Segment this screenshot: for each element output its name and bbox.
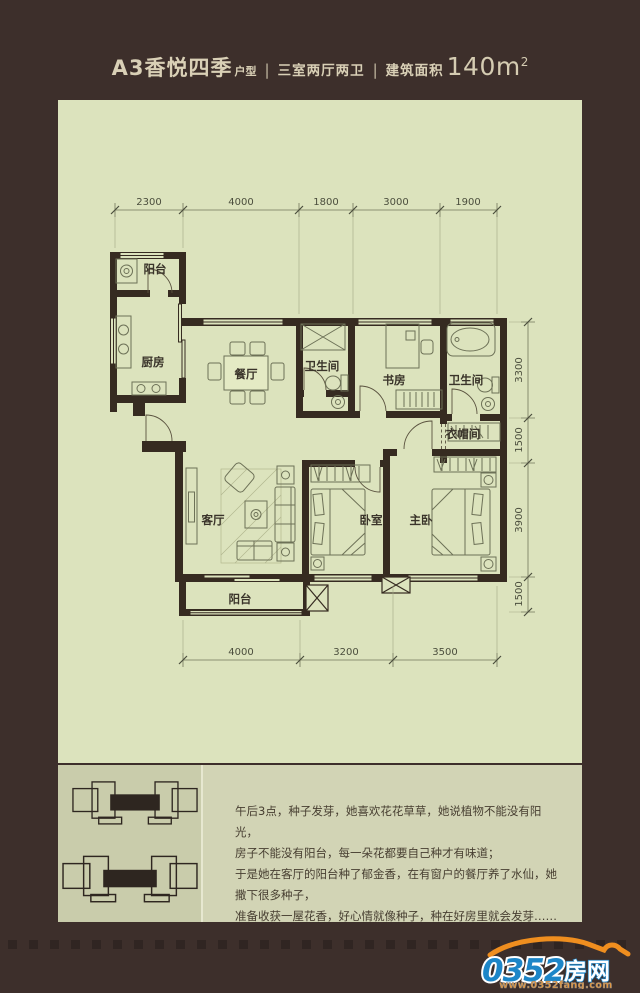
armchair xyxy=(223,461,255,493)
story-line-2: 房子不能没有阳台，每一朵花都要自己种才有味道； xyxy=(235,843,564,864)
bedroom-window xyxy=(314,575,372,581)
bath2-door xyxy=(452,389,477,414)
loveseat xyxy=(237,541,272,560)
tv-cabinet xyxy=(186,468,197,544)
plan-name: A3香悦四季 xyxy=(112,52,233,82)
floorplan-drawing: 2300 4000 1800 3000 1900 4000 3200 3500 … xyxy=(58,100,582,763)
logo-url: www.0352fang.com xyxy=(499,980,613,989)
kitchen-sliding-door xyxy=(179,304,186,378)
master-window xyxy=(408,575,478,581)
study-desk xyxy=(386,324,433,368)
shaft-box-balcony xyxy=(306,585,328,611)
dim-bottom-2: 3200 xyxy=(333,647,358,658)
label-kitchen: 厨房 xyxy=(142,355,165,369)
label-balcony-bottom: 阳台 xyxy=(229,592,252,606)
master-nightstand-bottom xyxy=(481,557,496,571)
long-sofa xyxy=(275,487,295,542)
master-bed xyxy=(432,489,490,555)
study-door xyxy=(360,386,386,411)
area-superscript: 2 xyxy=(521,55,529,69)
story-panel: 午后3点，种子发芽，她喜欢花花草草，她说植物不能没有阳光， 房子不能没有阳台，每… xyxy=(203,765,582,922)
title-separator-2: | xyxy=(373,61,378,79)
bath2-basin xyxy=(482,398,495,411)
bathtub xyxy=(447,323,495,356)
dim-right-3: 3900 xyxy=(514,507,525,532)
label-study: 书房 xyxy=(383,373,406,387)
coffee-table xyxy=(245,501,267,528)
bedroom-nightstand xyxy=(311,557,324,570)
building-key-panel xyxy=(58,765,203,922)
label-living: 客厅 xyxy=(201,513,225,527)
title-separator: | xyxy=(265,61,270,79)
shower xyxy=(301,324,345,350)
kitchen-sink xyxy=(116,316,131,368)
area-label: 建筑面积 xyxy=(386,59,444,79)
balcony-top-window xyxy=(120,253,164,259)
bedroom-bed xyxy=(311,489,365,555)
bath1-basin xyxy=(332,396,345,409)
plan-name-suffix: 户型 xyxy=(235,63,257,79)
story-text: 午后3点，种子发芽，她喜欢花花草草，她说植物不能没有阳光， 房子不能没有阳台，每… xyxy=(203,765,582,927)
building-silhouette-2 xyxy=(62,851,198,903)
dim-top-4: 3000 xyxy=(383,197,408,208)
label-cloakroom: 衣帽间 xyxy=(446,427,481,441)
stove xyxy=(132,382,166,395)
label-dining: 餐厅 xyxy=(234,367,258,381)
dim-right-2: 1500 xyxy=(514,427,525,452)
site-logo: 0352 房网 www.0352fang.com xyxy=(478,931,634,989)
label-master: 主卧 xyxy=(410,513,433,527)
label-balcony-top: 阳台 xyxy=(144,262,167,276)
doors xyxy=(146,269,477,492)
entry-door xyxy=(146,415,172,441)
dim-top-5: 1900 xyxy=(455,197,480,208)
area-value: 140m xyxy=(447,52,521,81)
shaft-box-flue xyxy=(382,577,410,593)
bath2-window xyxy=(450,319,494,325)
balcony-bottom-window xyxy=(190,611,302,616)
label-bath2: 卫生间 xyxy=(449,373,484,387)
dim-right-1: 3300 xyxy=(514,357,525,382)
story-line-3: 于是她在客厅的阳台种了郁金香，在有窗户的餐厅养了水仙，她撒下很多种子， xyxy=(235,864,564,906)
room-layout-text: 三室两厅两卫 xyxy=(278,59,365,79)
bedroom-wardrobe xyxy=(311,465,370,482)
master-door xyxy=(404,421,432,449)
dim-top-1: 2300 xyxy=(136,197,161,208)
side-table-bottom xyxy=(277,543,294,561)
plan-header: A3香悦四季户型 | 三室两厅两卫 | 建筑面积 140m 2 xyxy=(0,52,640,82)
dining-window xyxy=(203,319,283,325)
story-line-1: 午后3点，种子发芽，她喜欢花花草草，她说植物不能没有阳光， xyxy=(235,801,564,843)
washing-machine xyxy=(116,259,137,283)
floorplan-panel: 2300 4000 1800 3000 1900 4000 3200 3500 … xyxy=(58,100,582,763)
page-background: A3香悦四季户型 | 三室两厅两卫 | 建筑面积 140m 2 xyxy=(0,0,640,993)
label-bedroom: 卧室 xyxy=(360,513,383,527)
dim-right-4: 1500 xyxy=(514,581,525,606)
dim-top-3: 1800 xyxy=(313,197,338,208)
label-bath1: 卫生间 xyxy=(305,359,340,373)
dim-top-2: 4000 xyxy=(228,197,253,208)
story-line-4: 准备收获一屋花香，好心情就像种子，种在好房里就会发芽…… xyxy=(235,906,564,927)
master-nightstand-top xyxy=(481,473,496,487)
study-sofa xyxy=(396,390,442,409)
building-silhouette-1 xyxy=(72,777,198,825)
dim-bottom-3: 3500 xyxy=(432,647,457,658)
dim-bottom-1: 4000 xyxy=(228,647,253,658)
bath1-toilet xyxy=(326,375,349,391)
